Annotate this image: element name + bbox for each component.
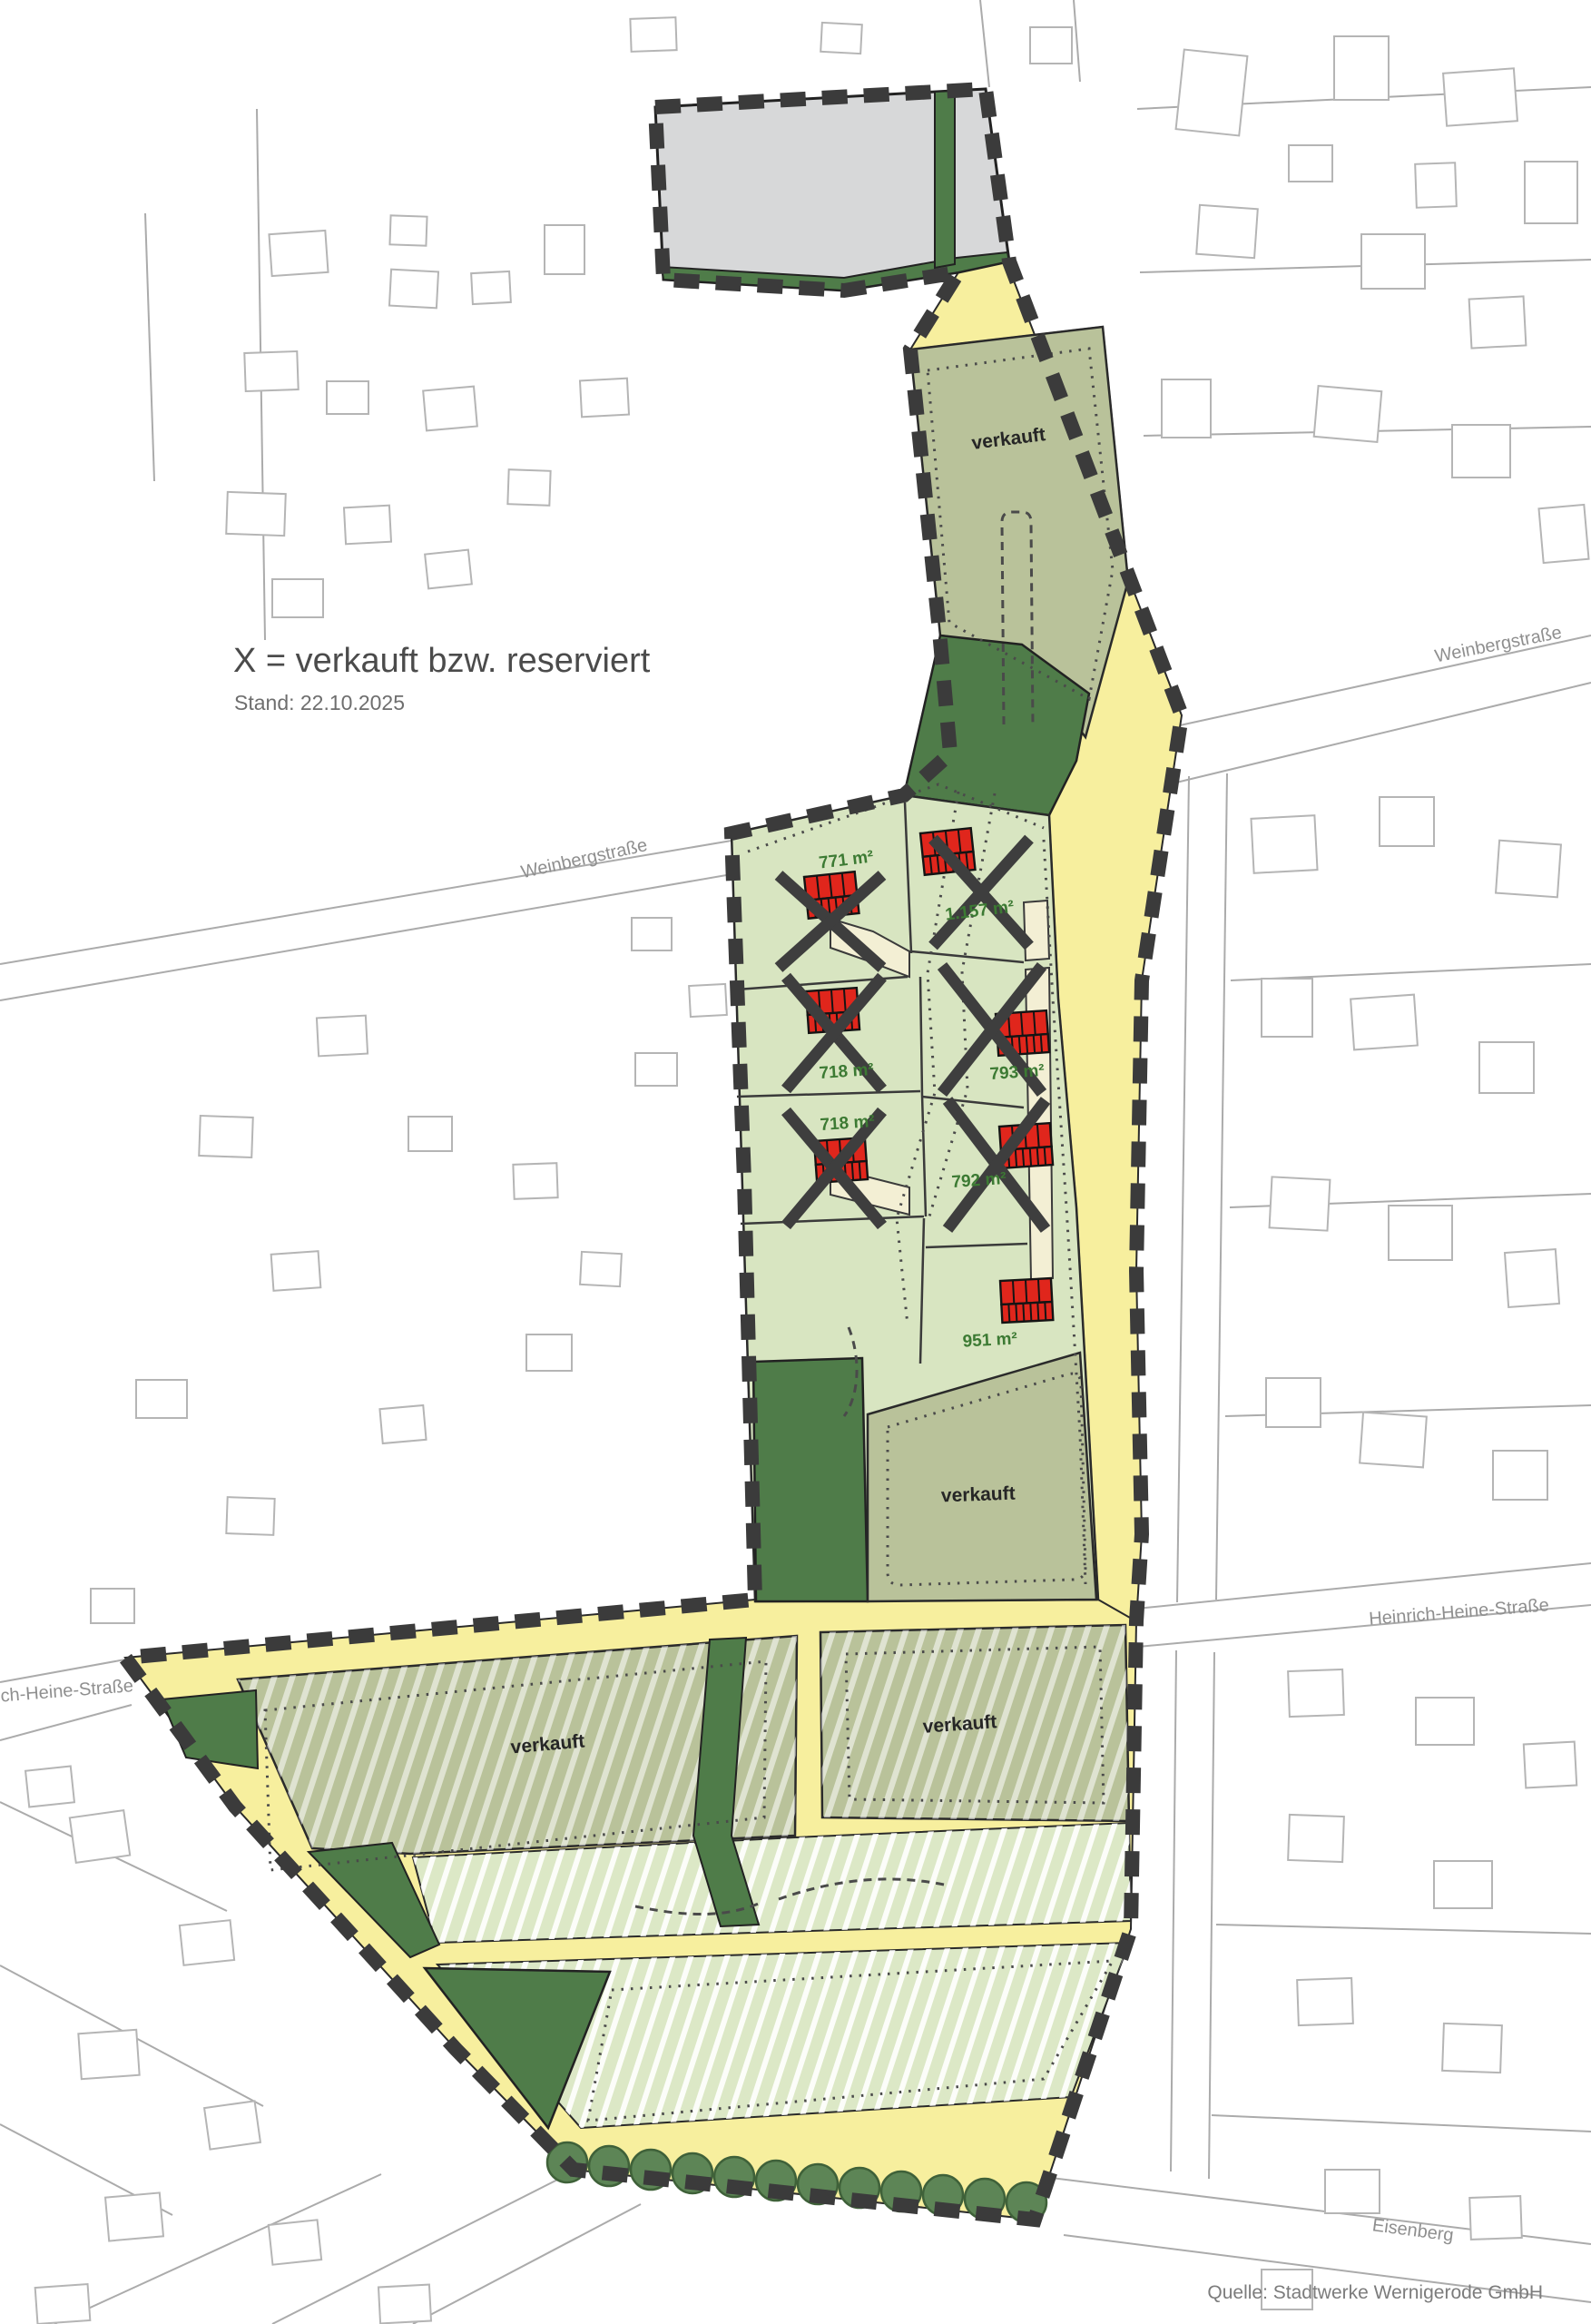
green-strip-vertical [935,91,955,268]
plot-size-label-951: 951 m² [962,1329,1017,1351]
plot-size-label-793: 793 m² [989,1061,1046,1084]
existing-area-north [655,89,1009,290]
street-label-eisenberg: Eisenberg [1371,2215,1455,2246]
site-plan-page: X = verkauft bzw. reserviert Stand: 22.1… [0,0,1591,2324]
street-label-heinrich-heine-right: Heinrich-Heine-Straße [1368,1595,1549,1630]
sold-area-label-center: verkauft [941,1483,1016,1507]
street-label-weinbergstrasse-right: Weinbergstraße [1433,623,1564,667]
green-area-west [753,1358,868,1601]
legend-title: X = verkauft bzw. reserviert [233,642,651,680]
street-label-heinrich-heine-left: ich-Heine-Straße [0,1676,134,1707]
plot-size-label-718b: 718 m² [820,1112,876,1135]
plot-size-label-718a: 718 m² [819,1060,875,1083]
legend-date: Stand: 22.10.2025 [234,691,405,714]
house-icon-plot-951 [1000,1278,1053,1323]
street-label-weinbergstrasse-left: Weinbergstraße [519,835,649,882]
site-plan-map: X = verkauft bzw. reserviert Stand: 22.1… [0,0,1591,2324]
plot-size-label-792: 792 m² [951,1169,1007,1192]
source-note: Quelle: Stadtwerke Wernigerode GmbH [1207,2282,1543,2303]
